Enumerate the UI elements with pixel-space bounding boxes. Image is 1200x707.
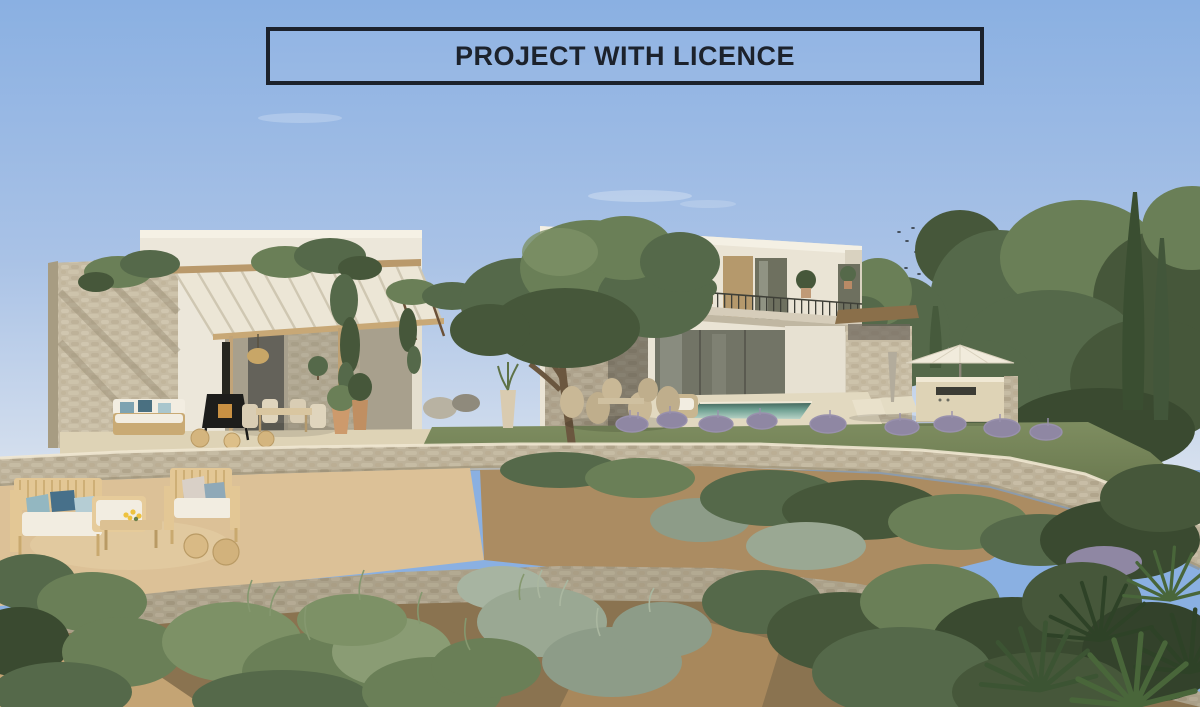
cloud bbox=[588, 190, 692, 202]
banner: PROJECT WITH LICENCE bbox=[266, 27, 984, 85]
outdoor-sofa bbox=[113, 399, 185, 435]
bean-bag bbox=[423, 397, 457, 419]
cloud bbox=[258, 113, 342, 123]
fire-glow bbox=[218, 404, 232, 418]
banner-text: PROJECT WITH LICENCE bbox=[455, 41, 795, 72]
sun-lounger bbox=[880, 396, 918, 415]
bean-bag bbox=[452, 394, 480, 412]
villa-rendering: PROJECT WITH LICENCE bbox=[0, 0, 1200, 707]
cloud bbox=[680, 200, 736, 208]
rendering-artwork bbox=[0, 0, 1200, 707]
grill bbox=[936, 387, 976, 395]
